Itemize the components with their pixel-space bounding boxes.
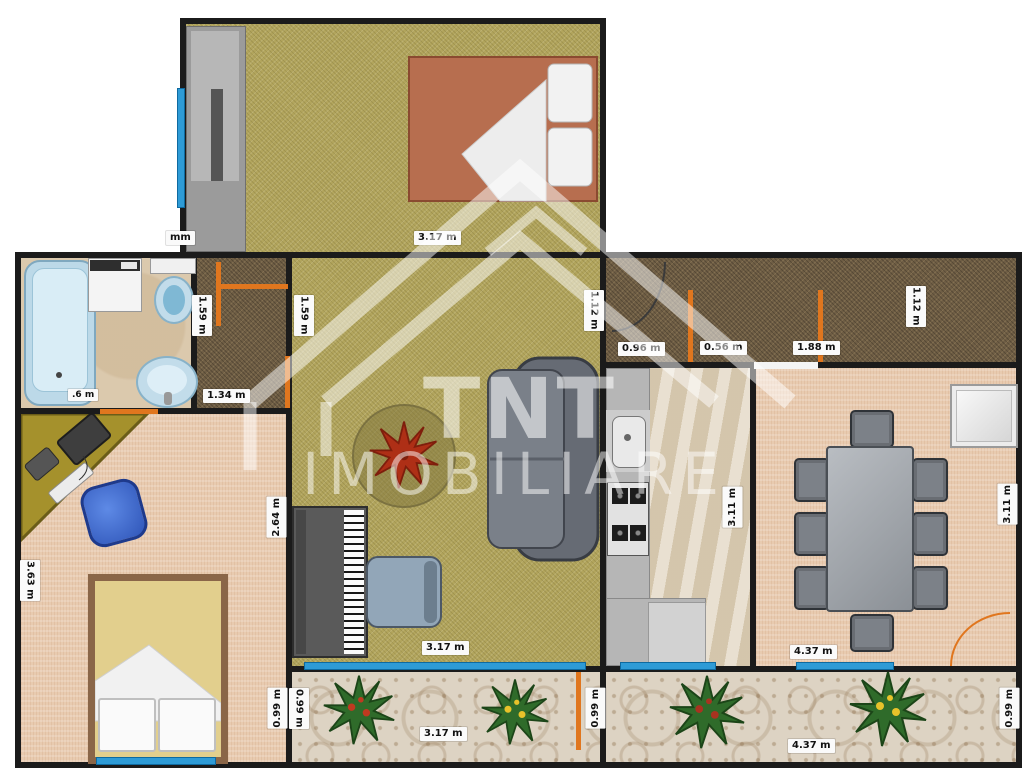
dim-balcony-left-b: 0.99 m bbox=[586, 688, 606, 729]
cabinet bbox=[950, 384, 1018, 448]
dining-chair-left-1 bbox=[794, 458, 830, 502]
sink-faucet bbox=[164, 392, 172, 405]
door-frame-hall-small-b bbox=[218, 284, 288, 289]
dim-living-wall-height: 2.64 m bbox=[267, 497, 287, 538]
dim-hall-small-right: 1.59 m bbox=[294, 295, 314, 336]
dim-bedroom-top-width: 3.17 m bbox=[414, 231, 461, 245]
dim-living-width: 3.17 m bbox=[422, 641, 469, 655]
balcony-plant-2 bbox=[480, 676, 550, 746]
kitchen-appliance bbox=[648, 602, 706, 666]
piano-keys bbox=[344, 510, 364, 654]
washing-machine bbox=[88, 258, 142, 312]
sink-basin bbox=[147, 365, 187, 395]
dim-entry-right-height: 1.12 m bbox=[906, 286, 926, 327]
pillow-left-1 bbox=[98, 698, 156, 752]
double-bed bbox=[408, 56, 598, 202]
burner bbox=[630, 525, 646, 541]
dining-door-opening bbox=[754, 362, 818, 369]
dining-chair-right-3 bbox=[912, 566, 948, 610]
dim-dining-height: 3.11 m bbox=[998, 484, 1018, 525]
window-bedroom-left bbox=[96, 757, 216, 765]
balcony-plant-3 bbox=[668, 672, 746, 750]
door-frame-hall-small-c bbox=[285, 356, 290, 408]
dim-balcony-left-a: 0.99 m bbox=[289, 688, 309, 729]
dim-entry-segment-1: 0.96 m bbox=[618, 342, 665, 356]
door-frame-entry-a bbox=[688, 290, 693, 362]
pillow-left-2 bbox=[158, 698, 216, 752]
sofa bbox=[486, 356, 600, 562]
dim-dining-width: 4.37 m bbox=[790, 645, 837, 659]
door-frame-hall-small-a bbox=[216, 262, 221, 326]
armchair bbox=[366, 556, 442, 628]
dining-chair-left-2 bbox=[794, 512, 830, 556]
dim-balcony-right-height: 0.99 m bbox=[1000, 688, 1020, 729]
dim-hall-small-left: 1.59 m bbox=[192, 295, 212, 336]
door-frame-bedroom-left bbox=[100, 409, 158, 414]
dim-balcony-left-width: 3.17 m bbox=[420, 727, 467, 741]
dining-chair-top bbox=[850, 410, 894, 448]
dim-balcony-right-width: 4.37 m bbox=[788, 739, 835, 753]
piano-body-edge bbox=[296, 510, 306, 654]
dining-chair-bottom bbox=[850, 614, 894, 652]
toilet-bowl bbox=[154, 276, 194, 324]
piano bbox=[292, 506, 368, 658]
sink bbox=[136, 356, 198, 408]
washing-machine-panel bbox=[90, 260, 140, 271]
room-balcony-right bbox=[600, 666, 1022, 768]
burner bbox=[612, 488, 628, 504]
dim-bedroom-left-height: 3.63 m bbox=[20, 560, 40, 601]
wardrobe-handle bbox=[211, 89, 223, 181]
dim-kitchen-height: 3.11 m bbox=[723, 487, 743, 528]
burner bbox=[630, 488, 646, 504]
dining-chair-right-2 bbox=[912, 512, 948, 556]
window-dining bbox=[796, 662, 894, 670]
wardrobe bbox=[186, 26, 246, 252]
toilet-tank bbox=[150, 258, 196, 274]
armchair-back bbox=[424, 561, 437, 623]
dining-chair-left-3 bbox=[794, 566, 830, 610]
kitchen-sink-basin bbox=[612, 416, 646, 468]
window-living bbox=[304, 662, 586, 670]
dining-table bbox=[826, 446, 914, 612]
dim-hall-small-width: 1.34 m bbox=[203, 389, 250, 403]
bathtub-drain bbox=[56, 372, 62, 378]
dim-bedroom-top-note: mm bbox=[166, 231, 195, 245]
balcony-plant-4 bbox=[848, 668, 928, 748]
toilet-bowl-inner bbox=[163, 285, 185, 315]
dim-living-top-right: 1.12 m bbox=[584, 290, 604, 331]
kitchen-sink-unit bbox=[606, 410, 650, 472]
floor-plan: mm 3.17 m 1.59 m 1.59 m 1.34 m .6 m 2.64… bbox=[0, 0, 1024, 768]
stove bbox=[607, 482, 649, 556]
bathtub bbox=[24, 260, 96, 406]
balcony-plant-1 bbox=[322, 672, 396, 746]
dim-bathroom-note: .6 m bbox=[68, 389, 98, 401]
washing-machine-display bbox=[121, 262, 137, 269]
door-frame-balcony bbox=[576, 672, 581, 750]
dim-entry-segment-3: 1.88 m bbox=[793, 341, 840, 355]
dining-chair-right-1 bbox=[912, 458, 948, 502]
cabinet-front bbox=[956, 390, 1012, 442]
red-plant bbox=[368, 418, 440, 490]
burner bbox=[612, 525, 628, 541]
window-kitchen bbox=[620, 662, 716, 670]
window-bedroom-top bbox=[177, 88, 185, 208]
dim-bedroom-left-balcony: 0.99 m bbox=[268, 688, 288, 729]
dim-entry-segment-2: 0.56 m bbox=[700, 341, 747, 355]
kitchen-faucet bbox=[624, 434, 631, 441]
